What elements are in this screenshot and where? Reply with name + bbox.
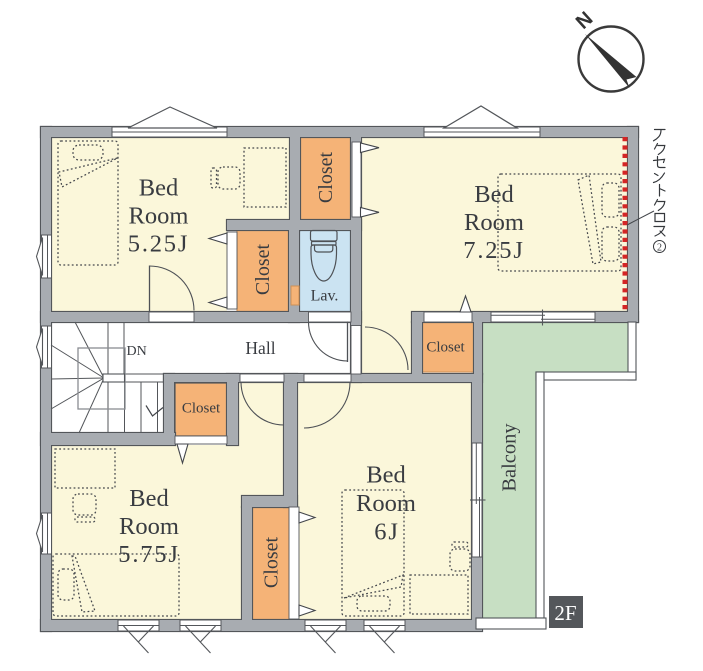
svg-text:Closet: Closet [426,340,465,356]
svg-text:Lav.: Lav. [311,288,339,305]
svg-text:Closet: Closet [261,537,283,589]
svg-text:Bed: Bed [366,462,405,489]
svg-text:Bed: Bed [139,175,178,202]
svg-text:5.75J: 5.75J [118,541,179,568]
svg-text:Balcony: Balcony [499,423,521,492]
svg-text:Room: Room [119,513,179,540]
svg-text:Bed: Bed [474,181,513,208]
svg-text:Closet: Closet [182,401,221,417]
svg-text:DN: DN [127,344,147,359]
svg-text:Room: Room [356,490,416,517]
svg-text:7.25J: 7.25J [463,237,524,264]
svg-text:Room: Room [464,209,524,236]
svg-text:Room: Room [129,203,189,230]
svg-text:2F: 2F [554,601,576,625]
svg-text:Closet: Closet [252,244,274,296]
svg-text:2: 2 [657,243,662,254]
svg-text:Closet: Closet [315,152,337,204]
svg-text:Bed: Bed [129,485,168,512]
svg-text:5.25J: 5.25J [128,231,189,258]
svg-text:Hall: Hall [245,338,275,358]
svg-text:6J: 6J [374,519,399,546]
